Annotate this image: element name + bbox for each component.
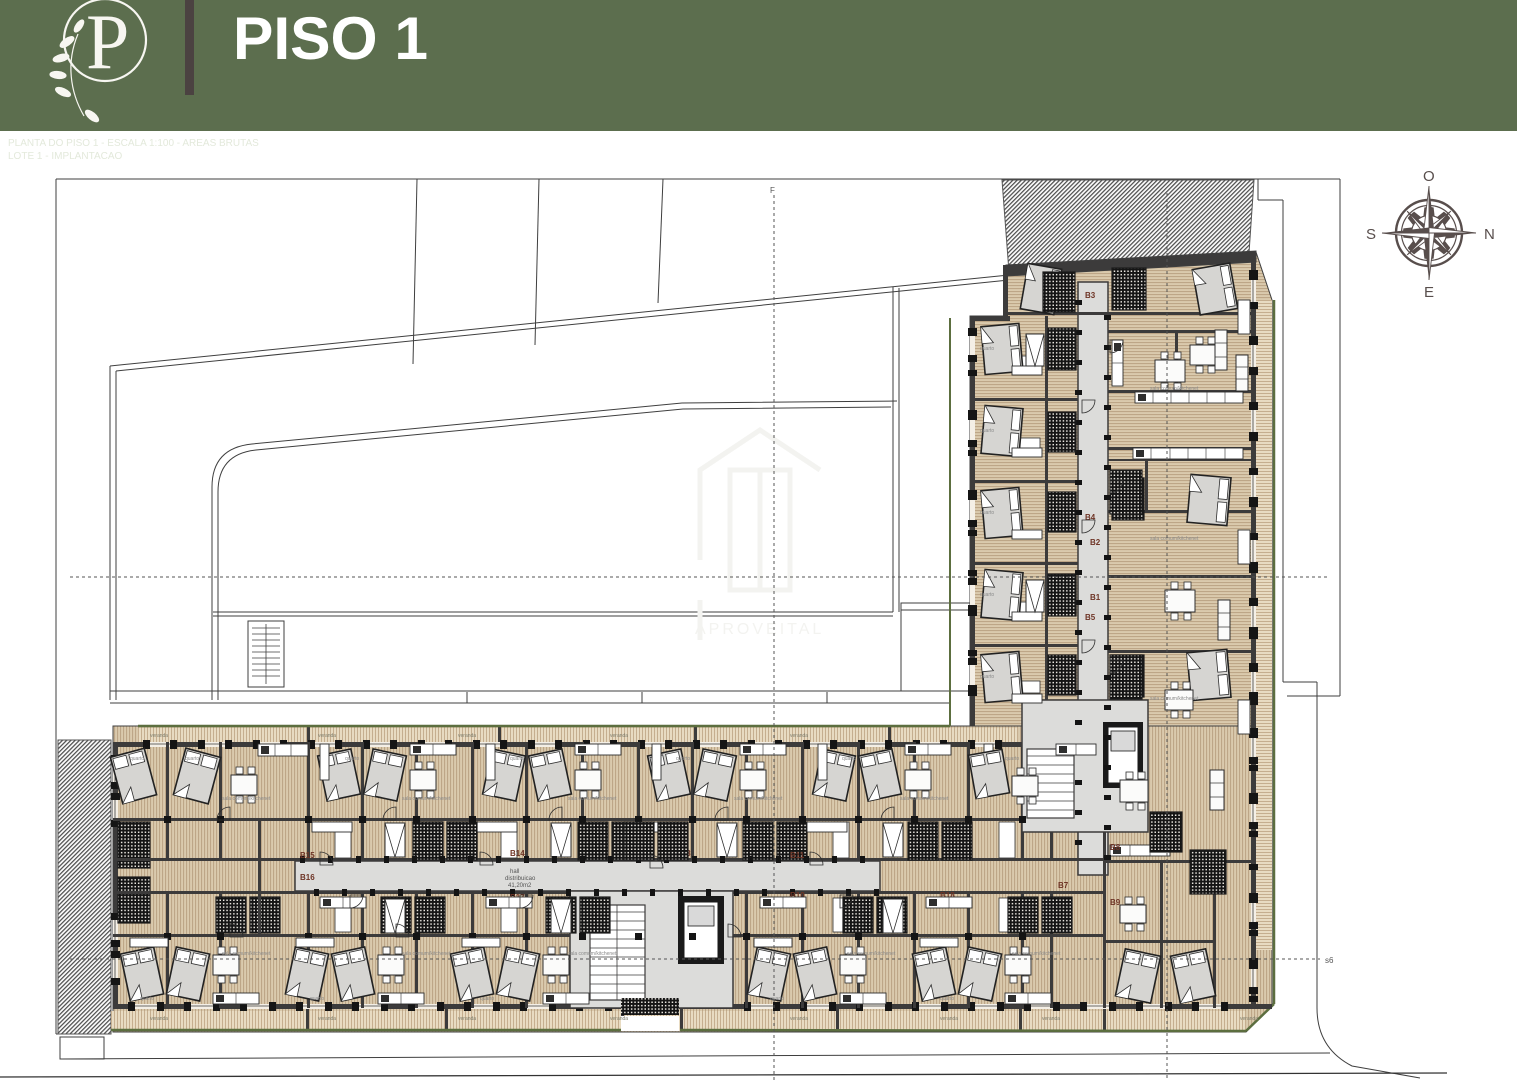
svg-text:veranda: veranda <box>940 1016 958 1022</box>
svg-text:sala comum/kitchenet: sala comum/kitchenet <box>900 796 949 802</box>
svg-text:sala comum/kitchenet: sala comum/kitchenet <box>222 796 271 802</box>
svg-text:B9: B9 <box>1110 898 1121 907</box>
svg-text:sala comum/kitchenet: sala comum/kitchenet <box>1012 951 1061 957</box>
svg-text:B16: B16 <box>300 873 315 882</box>
svg-text:quarto: quarto <box>1005 756 1019 762</box>
svg-text:veranda: veranda <box>1240 1016 1258 1022</box>
svg-text:sala comum/kitchenet: sala comum/kitchenet <box>402 951 451 957</box>
svg-text:B14: B14 <box>510 849 525 858</box>
svg-text:quarto: quarto <box>770 996 784 1002</box>
svg-text:veranda: veranda <box>150 1016 168 1022</box>
svg-text:quarto: quarto <box>980 346 994 352</box>
svg-text:veranda: veranda <box>318 1016 336 1022</box>
svg-text:quarto: quarto <box>980 674 994 680</box>
svg-text:distribuicao: distribuicao <box>505 876 536 882</box>
svg-text:veranda: veranda <box>790 1016 808 1022</box>
svg-text:s6: s6 <box>1325 956 1334 965</box>
svg-text:veranda: veranda <box>610 733 628 739</box>
svg-text:veranda: veranda <box>458 1016 476 1022</box>
svg-text:sala comum/kitchenet: sala comum/kitchenet <box>1150 386 1199 392</box>
svg-text:B7: B7 <box>1058 881 1069 890</box>
svg-text:hall: hall <box>510 869 519 875</box>
svg-text:B15: B15 <box>300 851 315 860</box>
svg-text:quarto: quarto <box>980 592 994 598</box>
svg-text:B8: B8 <box>1110 843 1121 852</box>
svg-text:quarto: quarto <box>676 756 690 762</box>
svg-text:quarto: quarto <box>130 756 144 762</box>
svg-text:quarto: quarto <box>940 996 954 1002</box>
svg-text:E: E <box>1424 284 1434 301</box>
svg-text:quarto: quarto <box>980 510 994 516</box>
svg-text:PISO 1: PISO 1 <box>233 5 428 72</box>
svg-text:F: F <box>770 186 775 195</box>
svg-text:B1: B1 <box>1090 593 1101 602</box>
svg-text:veranda: veranda <box>458 733 476 739</box>
svg-text:sala comum/kitchenet: sala comum/kitchenet <box>402 796 451 802</box>
svg-text:sala comum/kitchenet: sala comum/kitchenet <box>222 951 271 957</box>
svg-text:veranda: veranda <box>150 733 168 739</box>
svg-text:sala comum/kitchenet: sala comum/kitchenet <box>1150 696 1199 702</box>
svg-text:sala comum/kitchenet: sala comum/kitchenet <box>734 796 783 802</box>
svg-text:S: S <box>1366 226 1376 243</box>
svg-text:veranda: veranda <box>318 733 336 739</box>
svg-text:B2: B2 <box>1090 538 1101 547</box>
svg-text:B11: B11 <box>790 851 805 860</box>
svg-text:veranda: veranda <box>1042 1016 1060 1022</box>
svg-text:quarto: quarto <box>510 756 524 762</box>
svg-text:sala comum/kitchenet: sala comum/kitchenet <box>847 951 896 957</box>
svg-text:B3: B3 <box>1085 291 1096 300</box>
svg-text:LOTE 1 - IMPLANTACAO: LOTE 1 - IMPLANTACAO <box>8 151 123 162</box>
svg-text:quarto: quarto <box>842 756 856 762</box>
svg-text:sala comum/kitchenet: sala comum/kitchenet <box>1150 536 1199 542</box>
svg-text:PLANTA DO PISO 1 - ESCALA 1:10: PLANTA DO PISO 1 - ESCALA 1:100 - AREAS … <box>8 138 259 149</box>
svg-text:veranda: veranda <box>790 733 808 739</box>
svg-text:APROVEITAL: APROVEITAL <box>695 621 824 638</box>
svg-text:veranda: veranda <box>610 1016 628 1022</box>
svg-text:quarto: quarto <box>310 996 324 1002</box>
svg-text:quarto: quarto <box>980 428 994 434</box>
svg-text:B5: B5 <box>1085 613 1096 622</box>
svg-text:N: N <box>1484 226 1495 243</box>
svg-text:O: O <box>1423 168 1435 185</box>
svg-text:quarto: quarto <box>480 996 494 1002</box>
svg-text:quarto: quarto <box>185 756 199 762</box>
svg-text:sala comum/kitchenet: sala comum/kitchenet <box>568 796 617 802</box>
svg-text:quarto: quarto <box>140 996 154 1002</box>
svg-text:B4: B4 <box>1085 513 1096 522</box>
svg-text:P: P <box>86 0 129 85</box>
svg-text:41,20m2: 41,20m2 <box>508 883 532 889</box>
svg-text:quarto: quarto <box>345 756 359 762</box>
svg-text:sala comum/kitchenet: sala comum/kitchenet <box>568 951 617 957</box>
